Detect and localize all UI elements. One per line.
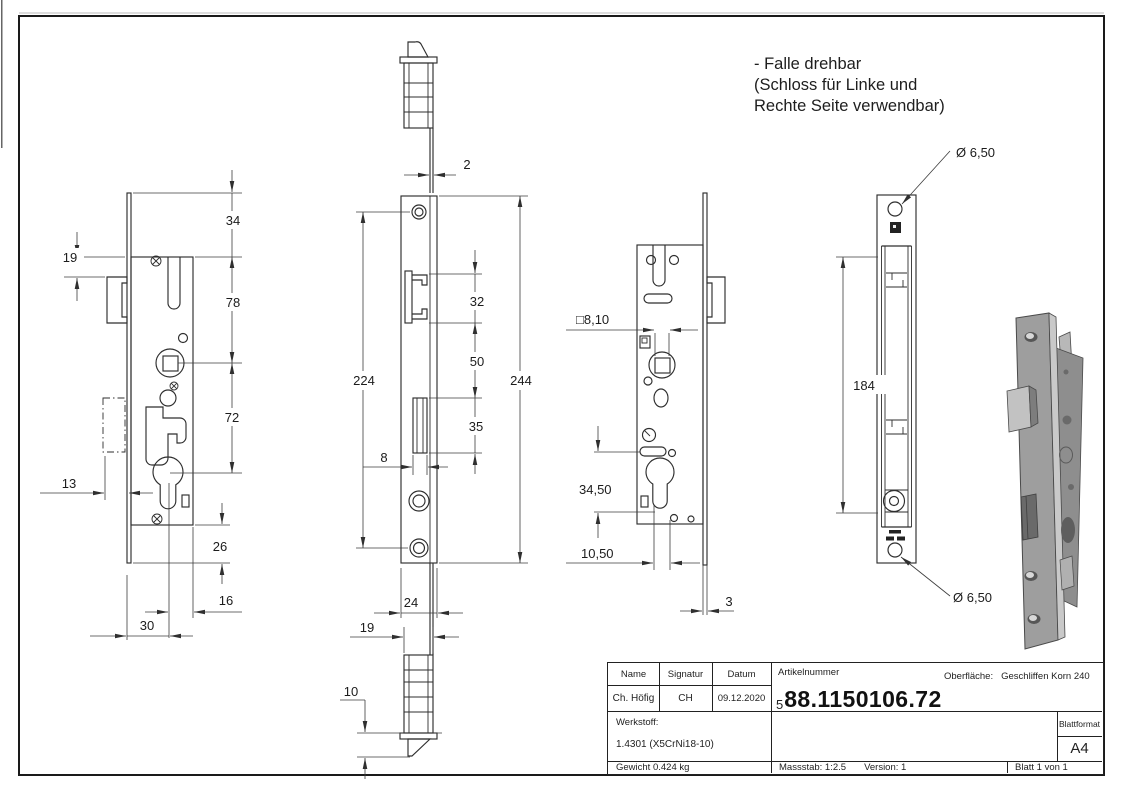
dim-label: 10 xyxy=(344,684,358,699)
screw-hole xyxy=(409,491,429,511)
drawing-page: 34 19 78 72 13 26 16 30 xyxy=(0,0,1123,794)
dims-view-faceplate xyxy=(340,175,528,779)
note-line: (Schloss für Linke und xyxy=(754,75,945,96)
dim-label: 24 xyxy=(404,595,418,610)
dim-label: 72 xyxy=(225,410,239,425)
tb-werkstoff-label: Werkstoff: xyxy=(608,715,771,729)
tb-blattformat-label: Blattformat xyxy=(1057,711,1102,736)
dim-label: 244 xyxy=(510,373,532,388)
dim-label: 19 xyxy=(63,250,77,265)
view-back-case: □8,10 34,50 10,50 3 xyxy=(566,193,734,615)
mounting-hole xyxy=(888,543,902,557)
dim-label: 16 xyxy=(219,593,233,608)
dim-label: 26 xyxy=(213,539,227,554)
view-edge: 184 Ø 6,50 Ø 6,50 xyxy=(836,145,995,605)
tb-name-value: Ch. Höfig xyxy=(608,685,659,711)
drawing-note: - Falle drehbar (Schloss für Linke und R… xyxy=(754,54,945,117)
title-block: Name Signatur Datum Ch. Höfig CH 09.12.2… xyxy=(607,662,1104,775)
latch-hidden-outline xyxy=(103,398,125,452)
view-front-case: 34 19 78 72 13 26 16 30 xyxy=(40,170,247,640)
tb-signatur-label: Signatur xyxy=(659,663,712,685)
adjuster-hole xyxy=(643,429,656,442)
mounting-hole xyxy=(888,202,902,216)
dim-label: Ø 6,50 xyxy=(956,145,995,160)
tb-blatt: Blatt 1 von 1 xyxy=(1007,761,1102,773)
note-line: Rechte Seite verwendbar) xyxy=(754,96,945,117)
tb-artikelnummer: 5 88.1150106.72 xyxy=(776,681,942,711)
dim-label: 224 xyxy=(353,373,375,388)
screw-hole xyxy=(410,539,428,557)
tb-version: Version: 1 xyxy=(864,762,906,773)
dim-label: 13 xyxy=(62,476,76,491)
dim-label: 32 xyxy=(470,294,484,309)
tb-name-label: Name xyxy=(608,663,659,685)
tb-massstab: Massstab: 1:2.5 xyxy=(779,762,846,773)
dims-view-front xyxy=(40,170,242,640)
tb-oberflaeche: Oberfläche: Geschliffen Korn 240 xyxy=(944,669,1102,683)
dim-label: 10,50 xyxy=(581,546,614,561)
screw-icon xyxy=(170,382,178,390)
dim-label: □8,10 xyxy=(576,312,609,327)
divider xyxy=(771,663,772,773)
tb-werkstoff-value: 1.4301 (X5CrNi18-10) xyxy=(608,737,771,751)
dim-label: 19 xyxy=(360,620,374,635)
tb-datum-label: Datum xyxy=(712,663,771,685)
screw-icon xyxy=(152,514,162,524)
tb-signatur-value: CH xyxy=(659,685,712,711)
lock-3d-render xyxy=(1007,313,1083,649)
view-faceplate: 2 224 244 32 50 35 8 24 19 10 xyxy=(340,42,542,779)
euro-cylinder-hole xyxy=(646,458,674,508)
tb-artikelnummer-value: 88.1150106.72 xyxy=(784,688,941,711)
dims-view-back xyxy=(566,330,734,615)
dim-label: 3 xyxy=(725,594,732,609)
tb-datum-value: 09.12.2020 xyxy=(712,685,771,711)
dim-label: 184 xyxy=(853,378,875,393)
follower-cutout xyxy=(146,407,186,465)
dim-label: 35 xyxy=(469,419,483,434)
tb-blattformat-value: A4 xyxy=(1057,736,1102,761)
latch-bolt xyxy=(107,277,127,323)
tb-artikelnummer-label: Artikelnummer xyxy=(778,666,898,678)
dims-view-edge xyxy=(836,151,950,596)
dim-label: 34 xyxy=(226,213,240,228)
dim-label: 50 xyxy=(470,354,484,369)
latch-window xyxy=(405,271,427,323)
dim-label: 8 xyxy=(380,450,387,465)
dim-label: 34,50 xyxy=(579,482,612,497)
tb-oberflaeche-value: Geschliffen Korn 240 xyxy=(1001,671,1090,682)
spindle-hole xyxy=(649,352,675,378)
tb-gewicht: Gewicht 0.424 kg xyxy=(608,761,771,773)
tb-massstab-version: Massstab: 1:2.5 Version: 1 xyxy=(771,761,1007,773)
latch-bolt xyxy=(707,277,725,323)
dim-label: 30 xyxy=(140,618,154,633)
screw-hole xyxy=(412,205,426,219)
dim-label: 78 xyxy=(226,295,240,310)
dim-label: Ø 6,50 xyxy=(953,590,992,605)
tb-oberflaeche-label: Oberfläche: xyxy=(944,671,993,682)
note-line: - Falle drehbar xyxy=(754,54,945,75)
tb-artikelnummer-prefix: 5 xyxy=(776,698,783,711)
dim-label: 2 xyxy=(463,157,470,172)
